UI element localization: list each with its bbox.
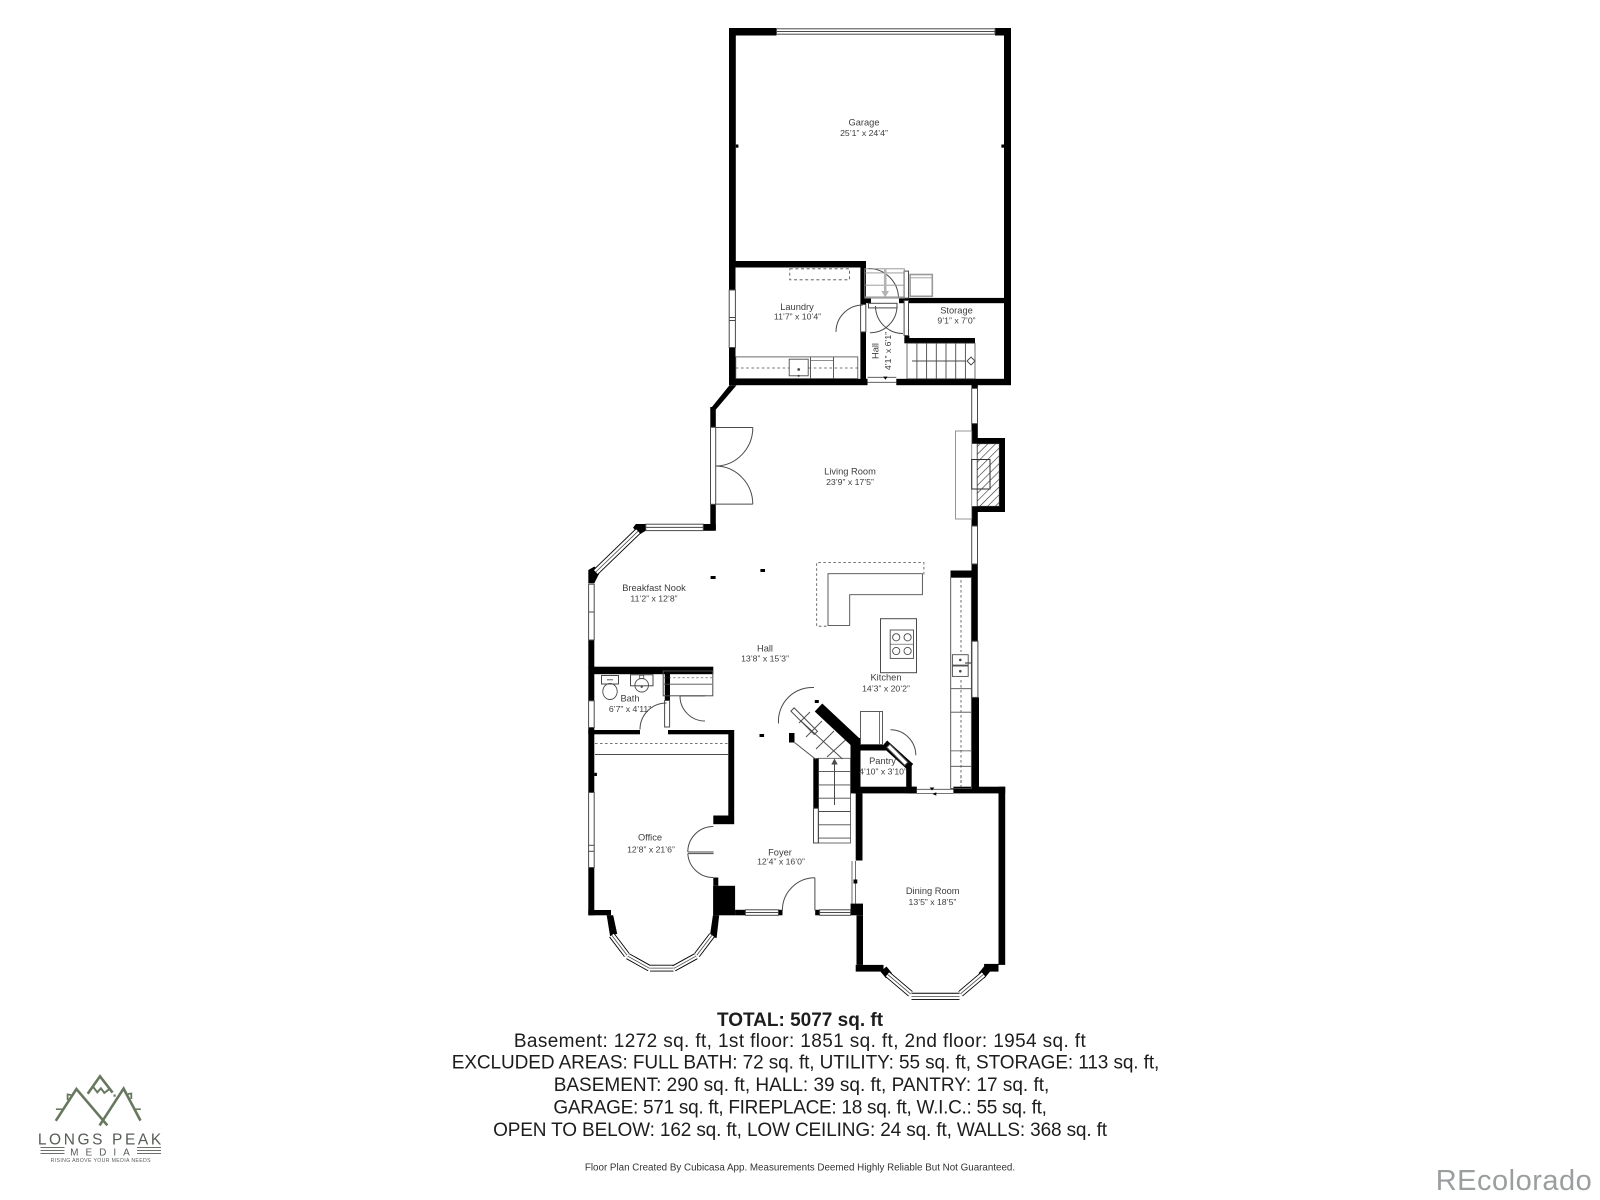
svg-text:Kitchen: Kitchen — [870, 673, 901, 683]
svg-text:LONGS PEAK: LONGS PEAK — [38, 1132, 164, 1149]
svg-text:14’3” x 20’2”: 14’3” x 20’2” — [862, 684, 910, 694]
svg-text:EXCLUDED AREAS: FULL BATH: 72: EXCLUDED AREAS: FULL BATH: 72 sq. ft, UT… — [452, 1053, 1159, 1074]
svg-text:Bath: Bath — [620, 694, 639, 704]
svg-text:TOTAL: 5077 sq. ft: TOTAL: 5077 sq. ft — [717, 1010, 884, 1031]
svg-text:Laundry: Laundry — [780, 302, 814, 312]
svg-text:25’1” x 24’4”: 25’1” x 24’4” — [840, 128, 888, 138]
svg-text:11’7” x 10’4”: 11’7” x 10’4” — [774, 311, 821, 321]
svg-text:11’2” x 12’8”: 11’2” x 12’8” — [630, 594, 677, 604]
svg-text:Dining Room: Dining Room — [906, 886, 960, 896]
svg-text:Breakfast Nook: Breakfast Nook — [622, 583, 686, 593]
svg-text:Pantry: Pantry — [869, 756, 896, 766]
svg-text:4’1” x 6’1”: 4’1” x 6’1” — [883, 332, 893, 370]
svg-text:Hall: Hall — [871, 343, 881, 359]
svg-text:REcolorado: REcolorado — [1436, 1165, 1593, 1197]
svg-text:BASEMENT: 290 sq. ft, HALL: 39: BASEMENT: 290 sq. ft, HALL: 39 sq. ft, P… — [554, 1075, 1050, 1096]
svg-text:9’1” x 7’0”: 9’1” x 7’0” — [937, 315, 975, 325]
svg-text:Garage: Garage — [848, 117, 879, 127]
svg-text:Living Room: Living Room — [824, 467, 876, 477]
svg-text:12’4” x 16’0”: 12’4” x 16’0” — [757, 857, 805, 867]
svg-text:OPEN TO BELOW: 162 sq. ft, LOW: OPEN TO BELOW: 162 sq. ft, LOW CEILING: … — [493, 1120, 1108, 1141]
svg-text:12’8” x 21’6”: 12’8” x 21’6” — [627, 844, 675, 854]
svg-text:Storage: Storage — [940, 305, 973, 315]
svg-text:13’5” x 18’5”: 13’5” x 18’5” — [908, 897, 956, 907]
svg-text:13’8” x 15’3”: 13’8” x 15’3” — [741, 654, 789, 664]
svg-text:Hall: Hall — [757, 643, 773, 653]
svg-text:GARAGE: 571 sq. ft, FIREPLACE:: GARAGE: 571 sq. ft, FIREPLACE: 18 sq. ft… — [553, 1098, 1046, 1119]
svg-text:23’9” x 17’5”: 23’9” x 17’5” — [826, 477, 874, 487]
svg-text:6’7” x 4’11”: 6’7” x 4’11” — [609, 704, 651, 714]
svg-text:RISING ABOVE YOUR MEDIA NEEDS: RISING ABOVE YOUR MEDIA NEEDS — [51, 1158, 151, 1164]
svg-text:Floor Plan Created By Cubicasa: Floor Plan Created By Cubicasa App. Meas… — [585, 1163, 1015, 1174]
svg-text:4’10” x 3’10”: 4’10” x 3’10” — [859, 766, 907, 776]
svg-text:Office: Office — [638, 833, 662, 843]
svg-text:Basement: 1272 sq. ft, 1st flo: Basement: 1272 sq. ft, 1st floor: 1851 s… — [514, 1031, 1087, 1052]
